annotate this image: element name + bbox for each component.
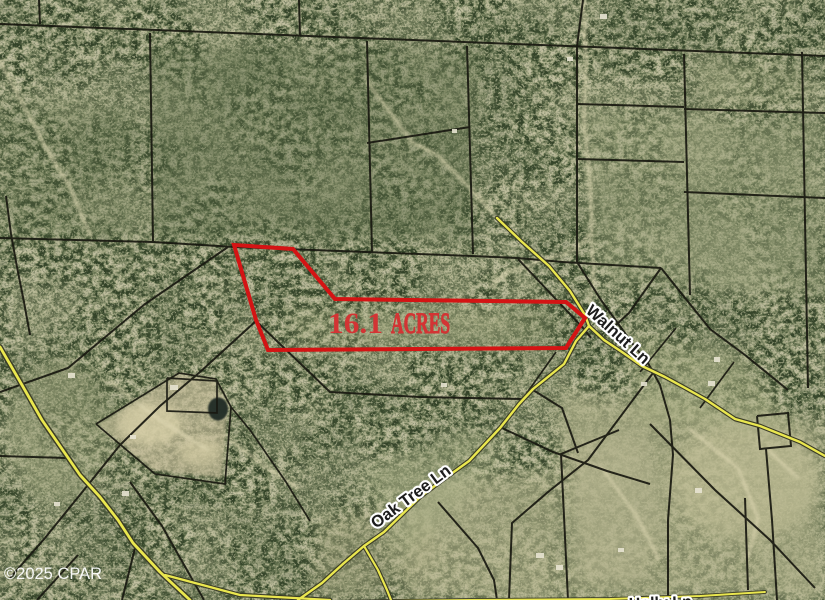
svg-text:Holly Ln: Holly Ln	[629, 594, 693, 600]
svg-text:16.1: 16.1	[328, 307, 383, 340]
svg-text:ACRES: ACRES	[391, 307, 450, 340]
svg-text:©2025 CPAR: ©2025 CPAR	[4, 565, 102, 583]
